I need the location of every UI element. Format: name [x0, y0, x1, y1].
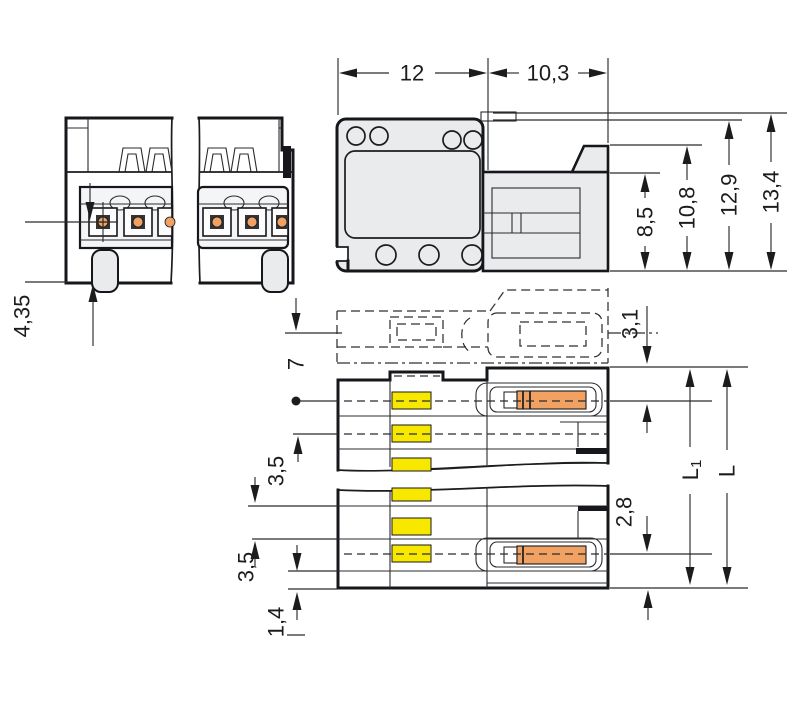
contact-cavity-pin1 — [476, 383, 602, 416]
side-notch — [334, 247, 348, 261]
pin-socket-4 — [203, 208, 231, 236]
dim-reference-dot — [292, 397, 301, 406]
pin-socket-2 — [124, 208, 152, 236]
dim-label-10-8: 10,8 — [675, 187, 700, 230]
bottom-view — [338, 368, 608, 588]
dim-label-13-4: 13,4 — [759, 171, 784, 214]
front-view — [66, 118, 293, 292]
dim-pitch-upper-3-5: 3,5 — [248, 434, 338, 506]
side-view — [334, 112, 608, 271]
pin-socket-5 — [238, 208, 266, 236]
coding-elements-upper — [392, 392, 431, 471]
mounting-foot — [262, 250, 288, 292]
contact-pin-orange — [165, 217, 175, 227]
technical-drawing-sheet: 12 10,3 8,5 10,8 — [0, 0, 794, 727]
bottom-lower-section — [338, 485, 608, 588]
dim-label-10-3: 10,3 — [527, 61, 570, 86]
dim-label-3-5-lower: 3,5 — [234, 552, 259, 583]
dim-label-12: 12 — [400, 61, 424, 86]
dim-label-1-4: 1,4 — [264, 607, 289, 638]
coding-elements-lower — [392, 488, 431, 562]
contact-pin-orange — [277, 217, 287, 227]
dim-length-L: L — [715, 369, 740, 585]
break-line — [338, 485, 608, 490]
mounting-foot — [92, 250, 118, 292]
phantom-contact-housing — [488, 313, 602, 357]
coding-element-yellow — [392, 458, 431, 471]
front-edge-step — [283, 146, 291, 178]
side-latch-bump — [572, 146, 608, 172]
break-line — [338, 463, 608, 471]
dim-label-L1-base: L — [678, 468, 703, 480]
pin-socket-6 — [272, 208, 288, 236]
dim-lip-1-4: 1,4 — [264, 589, 339, 637]
side-right-body — [483, 172, 608, 271]
dim-label-L: L — [715, 465, 740, 477]
dim-pitch-lower-3-5: 3,5 — [234, 539, 339, 582]
contact-pin-orange — [212, 217, 222, 227]
dim-phantom-3-1: 3,1 — [608, 306, 748, 367]
coding-element-yellow — [392, 488, 431, 501]
dim-label-3-5-upper: 3,5 — [264, 456, 289, 487]
latch-windows — [119, 148, 257, 172]
dim-label-3-1: 3,1 — [618, 309, 643, 340]
dim-label-2-8: 2,8 — [612, 497, 637, 528]
dim-label-7: 7 — [284, 358, 309, 370]
contact-pin-orange — [133, 217, 143, 227]
dim-label-L1: L1 — [678, 460, 705, 481]
dim-pin-length-7: 7 — [284, 298, 343, 406]
phantom-tab — [390, 317, 443, 347]
coding-element-yellow — [392, 518, 431, 535]
dim-label-4-35: 4,35 — [10, 295, 35, 338]
phantom-mating-view — [337, 288, 608, 363]
dim-label-8-5: 8,5 — [633, 207, 658, 238]
dim-label-12-9: 12,9 — [717, 174, 742, 217]
connector-dimension-drawing: 12 10,3 8,5 10,8 — [0, 0, 794, 727]
dim-label-L1-sub: 1 — [688, 460, 705, 468]
contact-pin-orange — [517, 546, 586, 564]
contact-pin-orange — [517, 391, 586, 409]
pin-socket-3-partial — [158, 208, 175, 236]
contact-pin-orange — [247, 217, 257, 227]
